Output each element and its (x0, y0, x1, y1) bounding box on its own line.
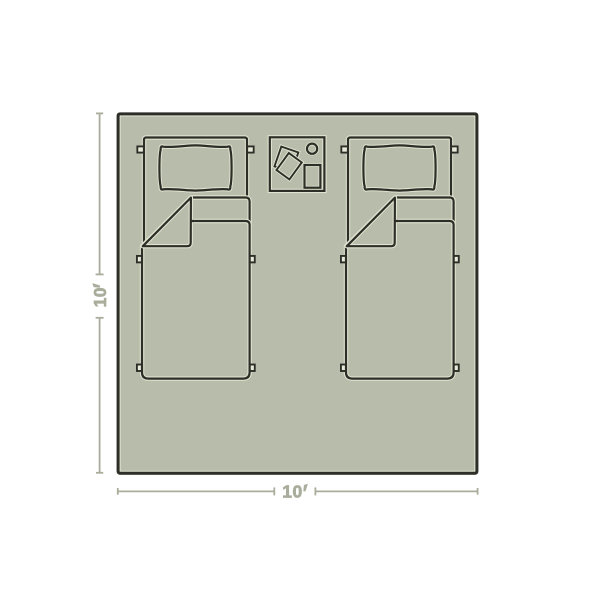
svg-text:10: 10 (282, 481, 302, 501)
svg-text:10: 10 (90, 287, 110, 307)
